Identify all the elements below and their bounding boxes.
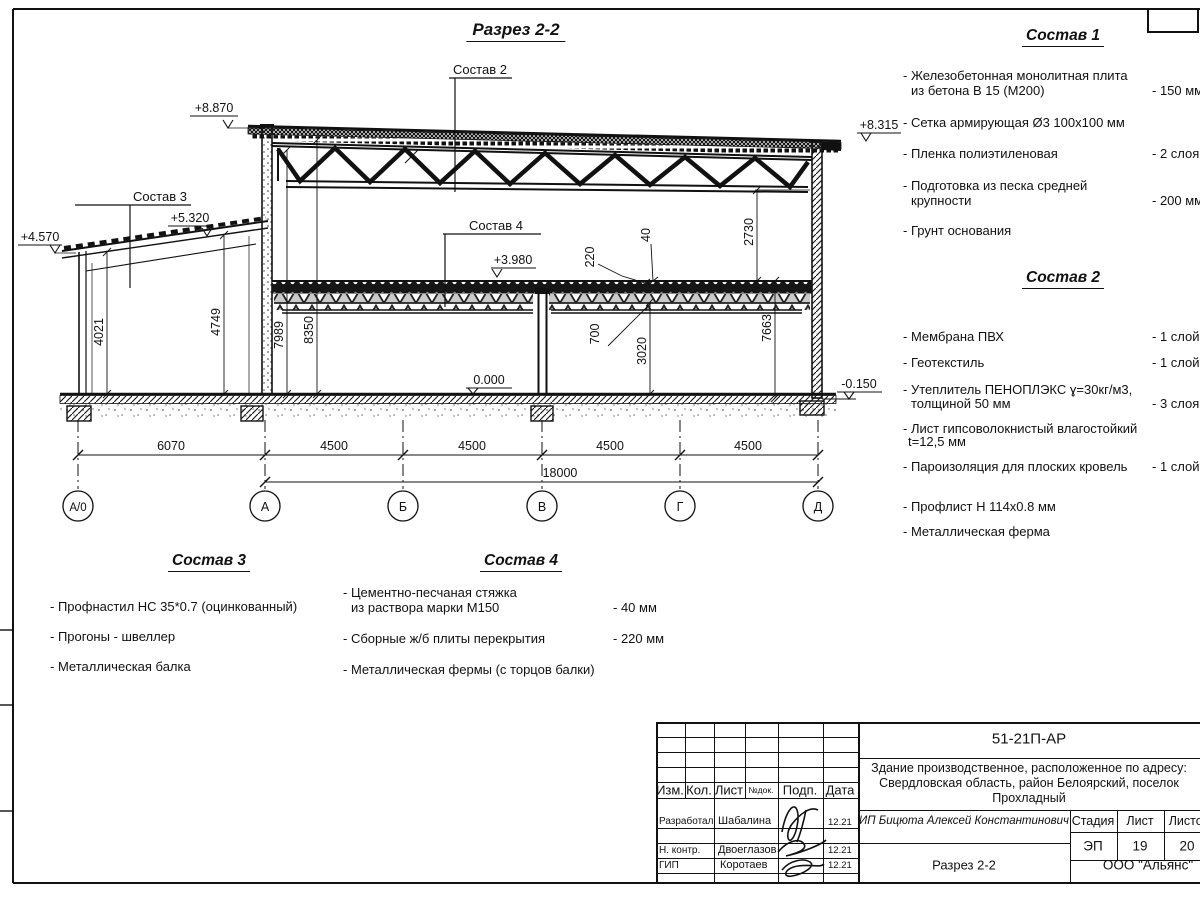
item-qty: - 150 мм — [1152, 83, 1200, 98]
list-item: - Пароизоляция для плоских кровель — [903, 459, 1127, 474]
list-item: - Железобетонная монолитная плита — [903, 68, 1128, 83]
list-item: - Металлическая фермы (с торцов балки) — [343, 662, 595, 677]
title-block: Изм. Кол. Лист №док. Подп. Дата Разработ… — [656, 722, 1200, 884]
bottom-dims — [63, 420, 833, 521]
sostav2-heading: Состав 2 — [1022, 269, 1104, 289]
left-wall — [262, 126, 272, 394]
list-item: - Утеплитель ПЕНОПЛЭКС ɣ=30кг/м3, — [903, 382, 1132, 397]
axis-label-b: Б — [399, 500, 407, 514]
drawing-title: Разрез 2-2 — [466, 20, 565, 42]
sand-base — [60, 404, 836, 417]
dim-220: 220 — [583, 247, 597, 268]
dim-3020: 3020 — [635, 337, 649, 365]
tb-date: 12.21 — [828, 860, 852, 871]
list-item: - Сборные ж/б плиты перекрытия — [343, 631, 545, 646]
tb-stage-label: Стадия — [1072, 814, 1115, 828]
callout-sostav4: Состав 4 — [469, 218, 523, 233]
dim-6070: 6070 — [157, 439, 185, 453]
level-leanto-low: +4.570 — [21, 230, 60, 244]
drawing-title-wrap: Разрез 2-2 — [466, 22, 565, 38]
frame-corner-box — [1148, 9, 1198, 32]
level-mid-floor: +3.980 — [494, 253, 533, 267]
tb-sheet-value: 19 — [1132, 839, 1147, 854]
leanto-annex — [62, 218, 268, 394]
tb-col-list: Лист — [715, 783, 743, 798]
list-item: из раствора марки М150 — [351, 600, 499, 615]
tb-doc-number: 51-21П-АР — [992, 731, 1066, 748]
tb-sheet-label: Лист — [1126, 814, 1153, 828]
list-item: - Грунт основания — [903, 223, 1011, 238]
sostav3-heading-wrap: Состав 3 — [168, 553, 250, 568]
list-item: крупности — [911, 193, 971, 208]
tb-col-kol: Кол. — [686, 783, 712, 798]
list-item: - Металлическая балка — [50, 659, 191, 674]
item-qty: - 3 слоя — [1152, 396, 1199, 411]
foundation-pad — [531, 406, 553, 421]
floor-truss-left — [274, 294, 533, 310]
tb-date: 12.21 — [828, 817, 852, 828]
foundation-pad — [67, 406, 91, 421]
dim-700: 700 — [588, 324, 602, 345]
item-qty: - 200 мм — [1152, 193, 1200, 208]
item-qty: - 220 мм — [613, 631, 664, 646]
list-item: - Прогоны - швеллер — [50, 629, 175, 644]
callout-sostav2: Состав 2 — [453, 62, 507, 77]
main-building — [60, 125, 856, 421]
dim-4500-4: 4500 — [734, 439, 762, 453]
tb-name: Двоеглазов — [718, 844, 776, 856]
dim-7989: 7989 — [272, 321, 286, 349]
sostav3-heading: Состав 3 — [168, 552, 250, 572]
tb-designer: ИП Бицюта Алексей Константинович — [859, 815, 1069, 827]
level-top-left: +8.870 — [195, 101, 234, 115]
dim-7663: 7663 — [760, 314, 774, 342]
signature — [774, 834, 830, 882]
right-wall — [812, 142, 822, 398]
dim-4500-3: 4500 — [596, 439, 624, 453]
sostav4-heading: Состав 4 — [480, 552, 562, 572]
tb-role: ГИП — [659, 860, 679, 871]
sostav2-heading-wrap: Состав 2 — [1022, 270, 1104, 285]
floor-screed-band — [60, 396, 836, 404]
dim-2730: 2730 — [742, 218, 756, 246]
list-item: - Профнастил НС 35*0.7 (оцинкованный) — [50, 599, 297, 614]
list-item: толщиной 50 мм — [911, 396, 1011, 411]
column-axis-v — [535, 288, 550, 394]
intermediate-floor — [272, 281, 812, 313]
dim-4500-1: 4500 — [320, 439, 348, 453]
dim-4021: 4021 — [92, 318, 106, 346]
tb-role: Н. контр. — [659, 845, 700, 856]
leanto-beam — [86, 244, 256, 271]
dim-8350: 8350 — [302, 316, 316, 344]
list-item: - Подготовка из песка средней — [903, 178, 1087, 193]
axis-label-a: А — [261, 500, 270, 514]
callout-sostav3: Состав 3 — [133, 189, 187, 204]
list-item: - Профлист Н 114x0.8 мм — [903, 499, 1056, 514]
item-qty: - 1 слой — [1152, 355, 1200, 370]
roof-right-end — [822, 142, 841, 151]
axis-label-v: В — [538, 500, 546, 514]
tb-address-2: Свердловская область, район Белоярский, … — [879, 776, 1179, 790]
tb-col-podp: Подп. — [783, 783, 818, 798]
level-top-right: +8.315 — [860, 118, 899, 132]
item-qty: - 2 слоя — [1152, 146, 1199, 161]
level-minus: -0.150 — [841, 377, 876, 391]
level-zero: 0.000 — [473, 373, 504, 387]
tb-date: 12.21 — [828, 845, 852, 856]
item-qty: - 1 слой — [1152, 459, 1200, 474]
list-item: - Геотекстиль — [903, 355, 984, 370]
dim-18000: 18000 — [543, 466, 578, 480]
list-item: - Цементно-песчаная стяжка — [343, 585, 517, 600]
tb-role: Разработал — [659, 816, 713, 827]
list-item: - Пленка полиэтиленовая — [903, 146, 1058, 161]
tb-sheets-label: Листов — [1169, 814, 1200, 828]
sostav1-heading: Состав 1 — [1022, 27, 1104, 47]
level-leanto-high: +5.320 — [171, 211, 210, 225]
dim-40: 40 — [639, 228, 653, 242]
tb-name: Коротаев — [720, 859, 768, 871]
axis-label-d: Д — [814, 500, 823, 514]
tb-col-ndok: №док. — [749, 785, 774, 795]
tb-section-name: Разрез 2-2 — [932, 858, 996, 873]
tb-address-3: Прохладный — [992, 791, 1065, 805]
tb-col-data: Дата — [826, 783, 855, 798]
vertical-dims — [103, 136, 810, 402]
dim-4500-2: 4500 — [458, 439, 486, 453]
list-item: - Металлическая ферма — [903, 524, 1050, 539]
tb-stage-value: ЭП — [1083, 839, 1102, 854]
list-item: - Сетка армирующая Ø3 100x100 мм — [903, 115, 1125, 130]
foundation-pad — [241, 406, 263, 421]
tb-name: Шабалина — [718, 815, 771, 827]
sostav1-heading-wrap: Состав 1 — [1022, 28, 1104, 43]
tb-sheets-value: 20 — [1179, 839, 1194, 854]
tb-col-izm: Изм. — [656, 783, 684, 798]
dim-4749: 4749 — [209, 308, 223, 336]
list-item: из бетона В 15 (М200) — [911, 83, 1045, 98]
item-qty: - 40 мм — [613, 600, 657, 615]
sostav4-heading-wrap: Состав 4 — [480, 553, 562, 568]
drawing-sheet: { "drawing": { "title": "Разрез 2-2", "c… — [0, 0, 1200, 900]
axis-label-g: Г — [677, 500, 684, 514]
list-item: - Мембрана ПВХ — [903, 329, 1004, 344]
foundation-pad — [800, 401, 824, 415]
axis-bubbles — [63, 491, 833, 521]
axis-label-a0: А/0 — [69, 502, 86, 514]
list-item: t=12,5 мм — [908, 434, 966, 449]
tb-company: ООО "Альянс" — [1103, 858, 1193, 873]
weld-mark — [403, 150, 420, 163]
ground-floor — [60, 394, 856, 421]
floor-truss-right — [549, 294, 810, 310]
tb-address-1: Здание производственное, расположенное п… — [871, 761, 1187, 775]
item-qty: - 1 слой — [1152, 329, 1200, 344]
